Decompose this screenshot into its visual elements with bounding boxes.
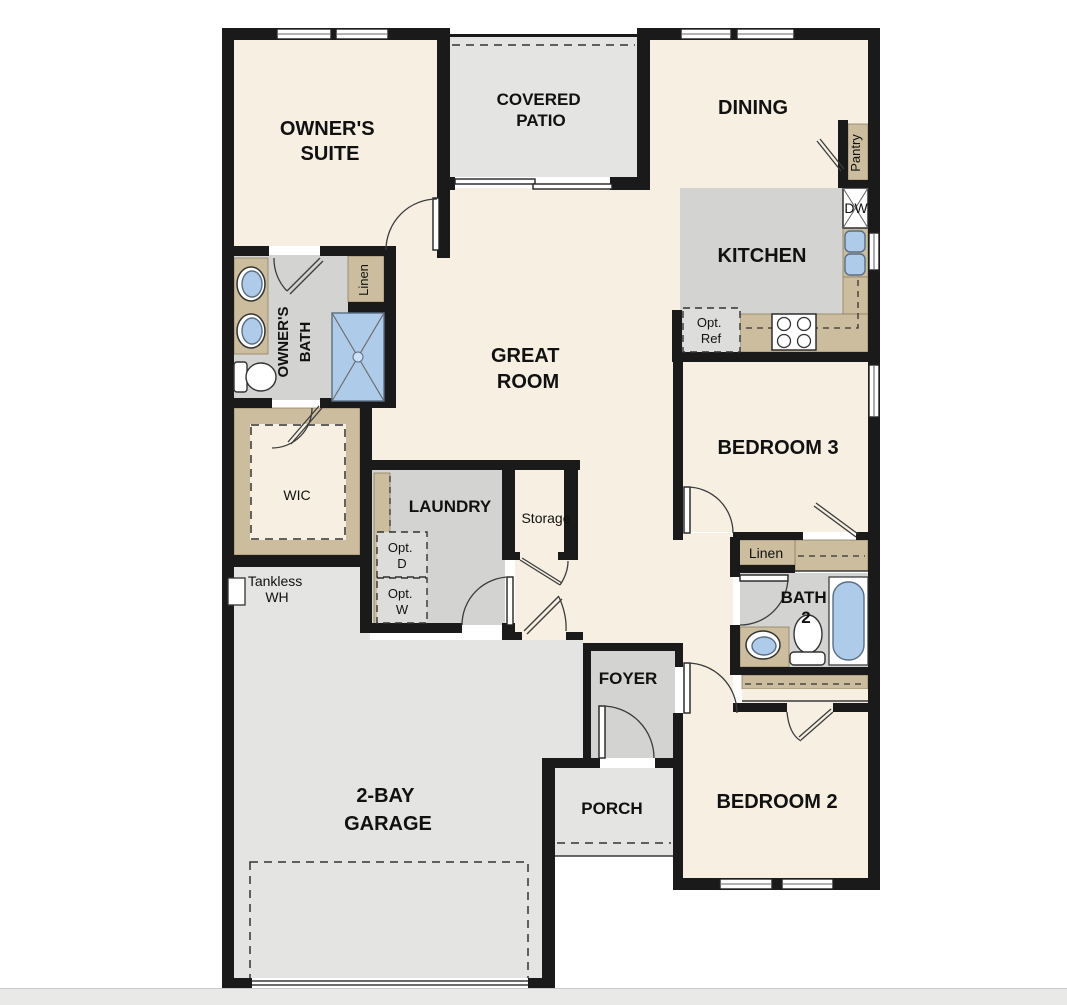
- wall-closet-3-stub: [856, 532, 870, 540]
- room-garage-1: [234, 567, 370, 978]
- porch-label: PORCH: [581, 799, 642, 818]
- wall-linen-hall-bottom: [730, 565, 795, 573]
- wall-bedroom-2-left: [673, 713, 683, 890]
- window: [869, 233, 879, 270]
- wall-bedroom-3-left: [673, 352, 683, 540]
- laundry-label: LAUNDRY: [409, 497, 492, 516]
- wall-foyer-left: [583, 643, 591, 768]
- wall-bedroom-2-bottom: [673, 878, 880, 890]
- wall-suite-bottom-2: [320, 246, 386, 256]
- sink: [237, 314, 265, 348]
- wic-label: WIC: [283, 487, 310, 503]
- bedroom-2-label: BEDROOM 2: [716, 791, 837, 813]
- bedroom-2-closet: [742, 675, 868, 689]
- wall-exterior-right: [868, 28, 880, 886]
- room-hall: [515, 462, 683, 643]
- toilet: [234, 362, 276, 392]
- page-footer-strip: [0, 988, 1067, 1005]
- owners-bath-label-2: BATH: [297, 322, 314, 363]
- wall-storage-bottom-2: [558, 552, 578, 560]
- window: [737, 29, 794, 39]
- wall-exterior-left: [222, 28, 234, 990]
- wall-pantry-left: [838, 120, 848, 188]
- wall-bath-right: [384, 246, 396, 408]
- wall-bedroom-3-bottom: [733, 532, 803, 540]
- wall-hall-garage-1: [502, 632, 522, 640]
- wall-laundry-top: [360, 460, 580, 470]
- pantry-label: Pantry: [848, 134, 863, 172]
- wall-kitchen-bottom: [672, 352, 880, 362]
- wall-garage-top: [222, 555, 372, 567]
- bedroom-3-label: BEDROOM 3: [717, 437, 838, 459]
- kitchen-label: KITCHEN: [718, 245, 807, 267]
- wall-foyer-right: [675, 643, 683, 667]
- wall-foyer-top: [583, 643, 683, 651]
- wall-suite-bottom-1: [222, 246, 269, 256]
- storage-label: Storage: [521, 510, 570, 526]
- wall-laundry-left: [360, 460, 372, 633]
- wall-bath-2-bottom: [730, 667, 880, 675]
- room-garage-2: [370, 640, 583, 758]
- owners-bath-label-1: OWNER'S: [275, 306, 292, 377]
- wall-storage-left: [502, 460, 515, 560]
- wall-patio-right: [637, 28, 650, 190]
- sink: [746, 631, 780, 659]
- window: [869, 365, 879, 417]
- wall-patio-roofline: [450, 34, 640, 37]
- floor-plan-drawing: OWNER'S SUITE COVERED PATIO DINING Pantr…: [0, 0, 1067, 1005]
- wall-patio-bottom-right: [610, 177, 650, 190]
- window: [782, 879, 833, 889]
- linen-owners-label: Linen: [356, 264, 371, 296]
- wall-laundry-bottom: [360, 623, 462, 633]
- window: [277, 29, 331, 39]
- stove: [772, 314, 816, 350]
- foyer-label: FOYER: [599, 669, 658, 688]
- wall-patio-bottom-left: [437, 177, 455, 190]
- dishwasher-label: DW: [844, 200, 868, 216]
- wall-closet-2-front-1: [733, 703, 787, 712]
- window: [720, 879, 772, 889]
- kitchen-counter-right: [843, 277, 868, 314]
- wall-storage-bottom-1: [502, 552, 520, 560]
- opt-ref-label: Opt. Ref: [697, 315, 725, 346]
- floor-plan: OWNER'S SUITE COVERED PATIO DINING Pantr…: [0, 0, 1067, 1005]
- wall-hall-garage-2: [566, 632, 583, 640]
- sink: [237, 267, 265, 301]
- room-great-room-ext: [372, 408, 393, 462]
- dining-label: DINING: [718, 97, 788, 119]
- wall-bath-bottom-1: [222, 398, 272, 408]
- wic-floor: [250, 424, 346, 540]
- tankless-water-heater: [228, 578, 245, 605]
- bathtub: [829, 577, 868, 665]
- window: [681, 29, 731, 39]
- linen-hall-label: Linen: [749, 545, 783, 561]
- wall-closet-2-front-2: [833, 703, 880, 712]
- wall-linen-shower-stub: [348, 302, 384, 313]
- wall-pantry-bottom: [838, 180, 880, 188]
- shower: [332, 313, 384, 401]
- window: [336, 29, 388, 39]
- wall-garage-right: [542, 758, 555, 990]
- sliding-glass-door: [455, 179, 612, 189]
